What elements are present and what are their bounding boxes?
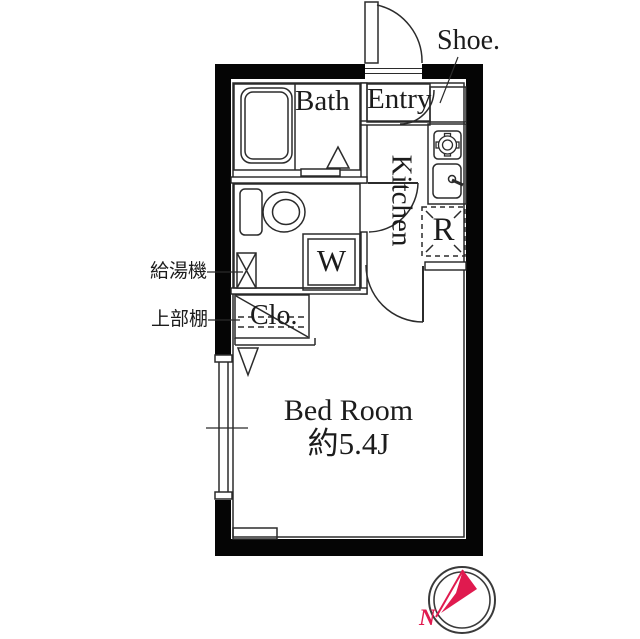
stove-burner-icon bbox=[436, 134, 459, 157]
shoe-cabinet-label: Shoe. bbox=[437, 27, 500, 55]
upper-shelf-label: 上部棚 bbox=[146, 310, 208, 329]
closet-door-triangle-icon bbox=[238, 348, 258, 375]
refrigerator-label: R bbox=[422, 214, 465, 247]
bedroom-size-label: 約5.4J bbox=[233, 428, 464, 459]
toilet-bowl-icon bbox=[263, 192, 305, 232]
entry-door bbox=[365, 2, 422, 74]
entry-door-arc bbox=[377, 5, 422, 63]
compass-icon bbox=[429, 567, 495, 633]
bedroom-door-arc bbox=[366, 265, 423, 322]
kitchen-label: Kitchen bbox=[387, 141, 416, 261]
kitchen-counter bbox=[428, 124, 466, 204]
bath-label: Bath bbox=[295, 87, 350, 116]
bathtub-icon bbox=[241, 88, 292, 163]
shoe-leader-line bbox=[440, 57, 458, 103]
shoe-cabinet-box bbox=[430, 87, 466, 122]
bath-door-triangle-icon bbox=[327, 147, 349, 168]
entry-door-leaf bbox=[365, 2, 378, 63]
toilet-tank-icon bbox=[240, 189, 262, 235]
bedroom-door bbox=[366, 265, 423, 322]
water-heater-label: 給湯機 bbox=[137, 262, 207, 281]
window bbox=[206, 355, 248, 499]
compass-north-label: N bbox=[419, 606, 436, 629]
floor-plan: Bath Entry Shoe. Kitchen W R Clo. Bed Ro… bbox=[0, 0, 640, 639]
entry-label: Entry bbox=[367, 85, 431, 114]
bedroom-label: Bed Room bbox=[233, 396, 464, 426]
water-heater-icon bbox=[237, 253, 256, 288]
closet-label: Clo. bbox=[250, 302, 297, 330]
washing-machine-label: W bbox=[303, 245, 360, 276]
bath-threshold bbox=[301, 169, 340, 176]
